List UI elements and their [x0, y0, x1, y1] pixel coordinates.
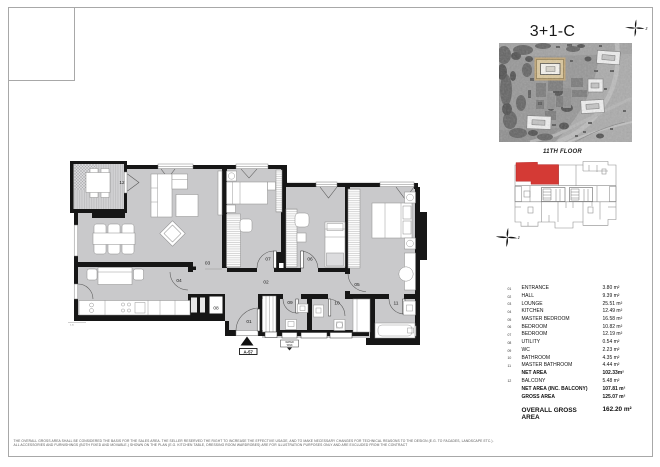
svg-text:2.10: 2.10	[70, 325, 75, 327]
svg-text:08: 08	[213, 306, 219, 312]
svg-text:04: 04	[176, 278, 182, 284]
svg-text:z: z	[645, 26, 649, 31]
svg-text:TANK: TANK	[286, 344, 293, 347]
svg-text:03: 03	[205, 261, 211, 267]
svg-text:07: 07	[265, 257, 271, 263]
svg-text:02: 02	[263, 280, 269, 286]
svg-text:05: 05	[354, 282, 360, 288]
svg-text:09: 09	[287, 300, 293, 306]
svg-text:11: 11	[394, 301, 399, 307]
svg-text:10: 10	[334, 301, 340, 307]
svg-text:12: 12	[119, 180, 125, 186]
svg-text:A-57: A-57	[244, 349, 254, 354]
svg-text:01: 01	[246, 319, 252, 325]
svg-text:06: 06	[307, 257, 313, 263]
svg-text:z: z	[517, 235, 521, 240]
